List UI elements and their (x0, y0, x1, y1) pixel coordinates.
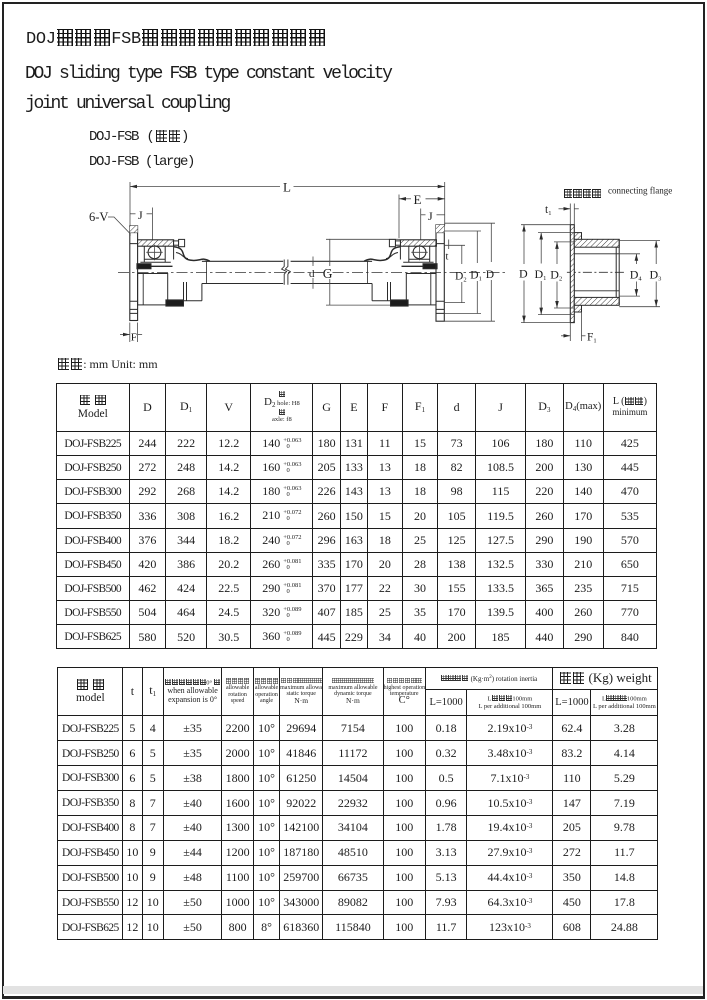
svg-text:t1: t1 (545, 204, 551, 217)
svg-text:D2: D2 (550, 267, 562, 282)
svg-text:E: E (414, 192, 422, 207)
svg-text:G: G (323, 266, 333, 281)
svg-text:D1: D1 (535, 267, 547, 282)
svg-text:F: F (131, 332, 137, 344)
svg-text:d: d (309, 268, 315, 280)
svg-text:6-V: 6-V (89, 210, 108, 224)
svg-text:t: t (446, 252, 449, 263)
svg-text:D: D (486, 269, 494, 281)
svg-text:L: L (283, 180, 291, 195)
svg-text:J: J (138, 208, 143, 222)
svg-text:D1: D1 (470, 270, 482, 283)
svg-text:D3: D3 (650, 267, 662, 282)
svg-text:D: D (519, 267, 528, 281)
svg-text:J: J (428, 209, 433, 223)
svg-text:connecting flange: connecting flange (608, 186, 672, 196)
svg-text:F1: F1 (587, 332, 597, 345)
svg-text:D4: D4 (630, 267, 643, 282)
